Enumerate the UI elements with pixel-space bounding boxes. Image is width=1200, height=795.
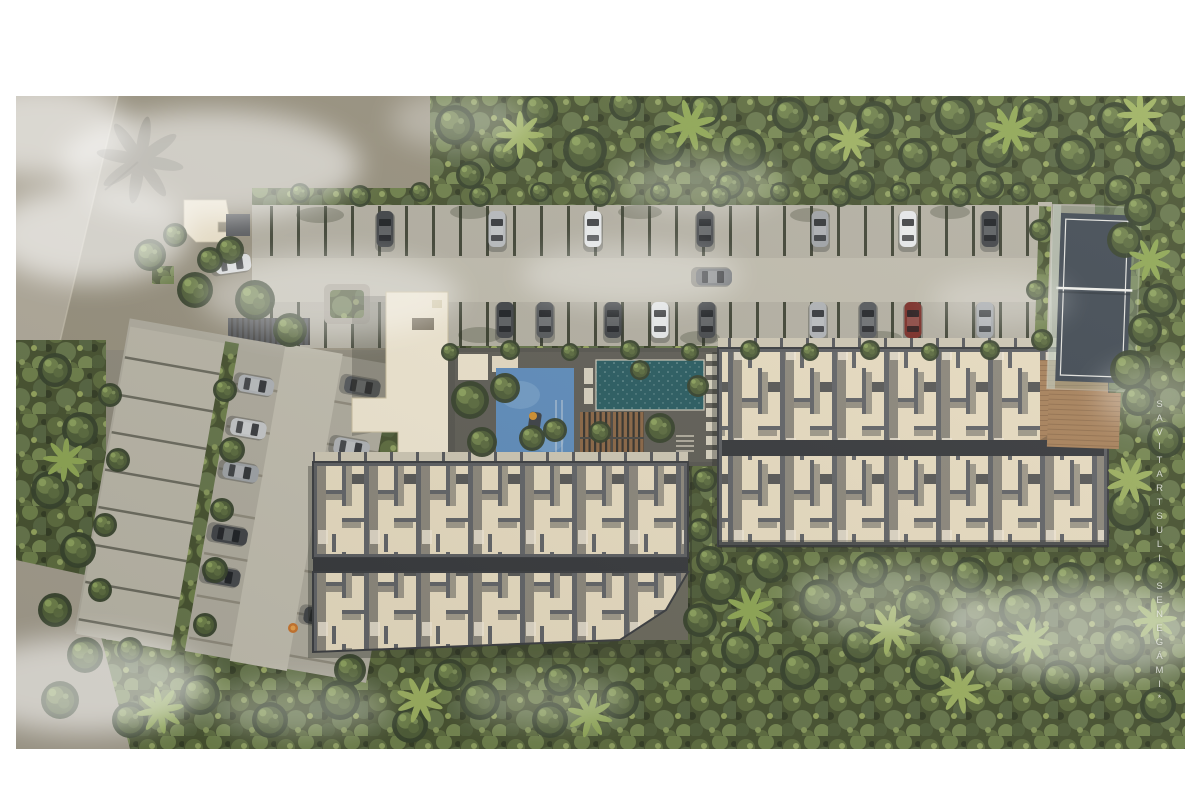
aerial-site-rendering: SAVITARTSULI SENEGÁMI* (16, 96, 1185, 749)
watermark-text: SAVITARTSULI SENEGÁMI* (1154, 399, 1165, 707)
rendering-page: SAVITARTSULI SENEGÁMI* (0, 0, 1200, 795)
site-plan-svg (16, 96, 1185, 749)
